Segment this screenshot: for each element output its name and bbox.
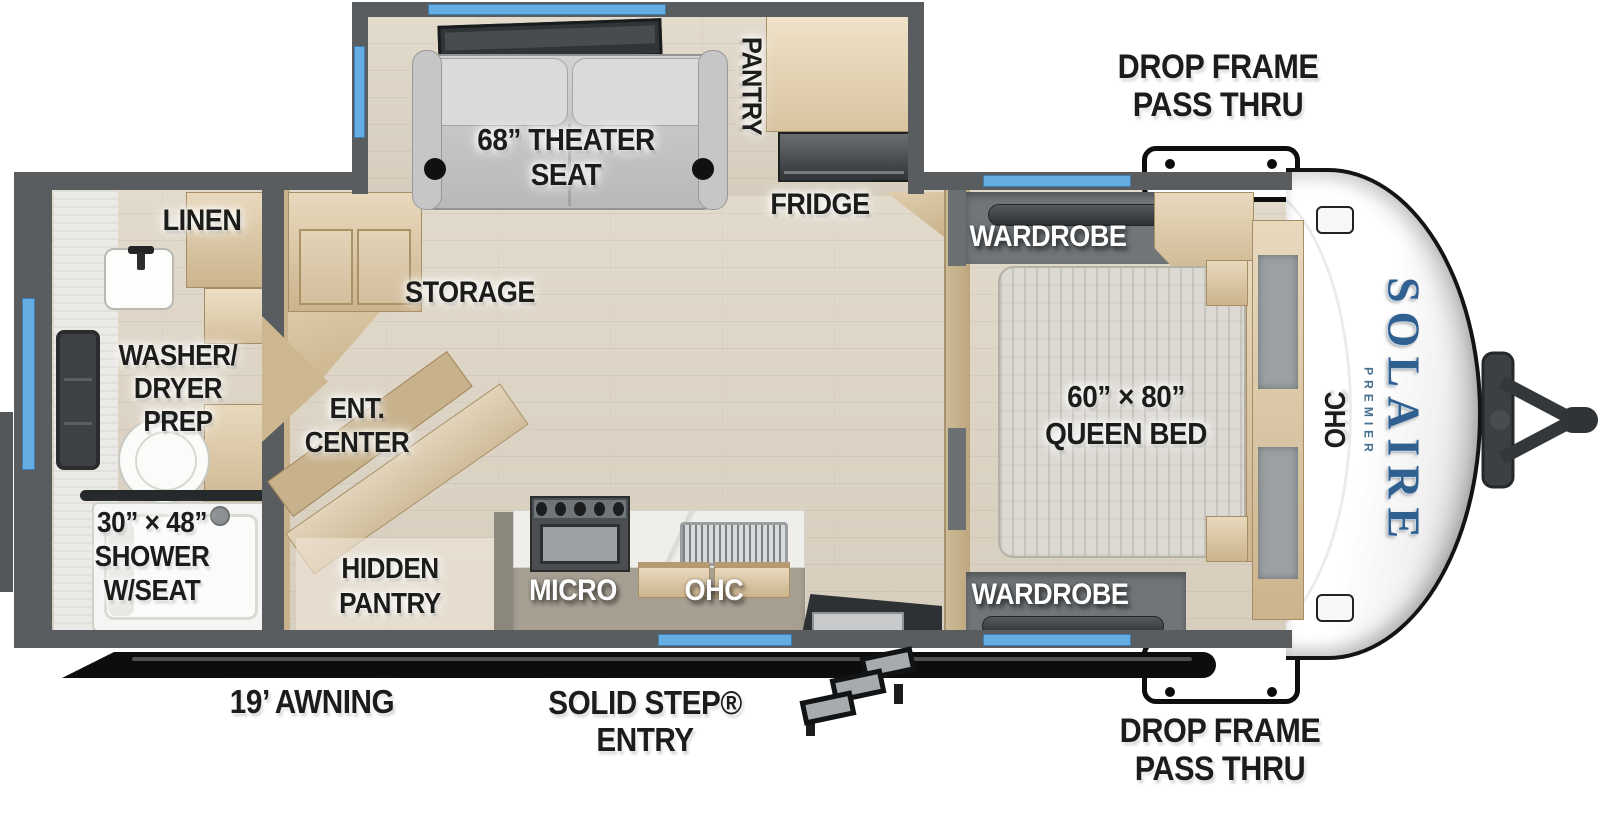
hidden-pantry-label: HIDDEN PANTRY bbox=[339, 552, 441, 622]
kitchen-end-panel bbox=[494, 512, 514, 632]
wardrobe-top-label: WARDROBE bbox=[970, 220, 1127, 254]
ent-center-line1: ENT. bbox=[305, 392, 410, 426]
divider-gray-segment bbox=[948, 190, 966, 266]
door-screw bbox=[1267, 159, 1277, 169]
door-screw bbox=[1267, 687, 1277, 697]
window-rear bbox=[22, 298, 35, 470]
drop-frame-bottom-line1: DROP FRAME bbox=[1120, 712, 1321, 750]
tongue-hitch bbox=[1440, 340, 1600, 500]
fridge-label: FRIDGE bbox=[770, 188, 869, 222]
shower-head-icon bbox=[210, 506, 230, 526]
bedside-cabinet bbox=[1206, 516, 1248, 562]
entry-line2: ENTRY bbox=[548, 721, 742, 758]
pantry-label: PANTRY bbox=[736, 37, 767, 135]
door-screw bbox=[1165, 687, 1175, 697]
cap-latch-top bbox=[1316, 206, 1354, 234]
hitch-jack bbox=[1490, 410, 1510, 430]
storage-label: STORAGE bbox=[405, 276, 535, 310]
drop-frame-top-line2: PASS THRU bbox=[1118, 86, 1319, 124]
micro-label: MICRO bbox=[529, 574, 617, 608]
oven-window bbox=[540, 524, 620, 564]
storage-cabinet bbox=[288, 192, 422, 312]
linen-label: LINEN bbox=[163, 204, 242, 238]
pantry-cabinet bbox=[766, 12, 924, 132]
brand-logo: SOLAIRE PREMIER bbox=[1362, 277, 1431, 547]
front-overhead-cabinet-band bbox=[1252, 220, 1304, 620]
washer-dryer-line3: PREP bbox=[119, 406, 238, 439]
cap-latch-bottom bbox=[1316, 594, 1354, 622]
entry-line1: SOLID STEP® bbox=[548, 684, 742, 721]
burner-icon bbox=[534, 500, 549, 518]
wardrobe-bottom-label: WARDROBE bbox=[972, 578, 1129, 612]
hitch-coupler bbox=[1560, 407, 1598, 433]
brand-name: SOLAIRE bbox=[1378, 277, 1431, 547]
queen-bed-line1: 60” × 80” bbox=[1045, 378, 1207, 415]
rear-bumper bbox=[0, 412, 13, 592]
floorplan-canvas: SOLAIRE PREMIER OHC PANTRY DROP FRAME PA… bbox=[0, 0, 1600, 815]
shower-line2: SHOWER bbox=[95, 540, 210, 574]
window-bedroom-top bbox=[983, 175, 1131, 187]
queen-bed-line2: QUEEN BED bbox=[1045, 415, 1207, 452]
window-slide-top bbox=[428, 4, 666, 15]
sofa-armrest bbox=[698, 50, 728, 210]
theater-seat-line1: 68” THEATER bbox=[477, 122, 654, 157]
cupholder-icon bbox=[692, 158, 714, 180]
theater-seat-line2: SEAT bbox=[477, 157, 654, 192]
solid-step-stairs bbox=[792, 646, 922, 738]
drop-frame-bottom-line2: PASS THRU bbox=[1120, 750, 1321, 788]
burner-row bbox=[534, 500, 626, 518]
shower-line3: W/SEAT bbox=[95, 574, 210, 608]
window-bedroom-bottom bbox=[983, 634, 1131, 646]
bedside-cabinet bbox=[1206, 260, 1248, 306]
fridge-door-line bbox=[784, 171, 904, 174]
entry-label: SOLID STEP® ENTRY bbox=[548, 684, 742, 758]
drop-frame-top-label: DROP FRAME PASS THRU bbox=[1118, 48, 1319, 124]
cabinet-inset bbox=[1258, 255, 1298, 389]
top-wall-left bbox=[14, 172, 364, 190]
faucet-stem bbox=[137, 252, 145, 270]
washer-dryer-label: WASHER/ DRYER PREP bbox=[119, 340, 238, 439]
cabinet-inset bbox=[1258, 447, 1298, 579]
theater-seat-label: 68” THEATER SEAT bbox=[477, 122, 654, 192]
toilet-bowl bbox=[135, 431, 197, 491]
burner-icon bbox=[592, 500, 607, 518]
step-leg bbox=[894, 684, 903, 704]
slide-wall-right bbox=[908, 2, 924, 194]
hidden-pantry-line2: PANTRY bbox=[339, 587, 441, 622]
ohc-kitchen-label: OHC bbox=[685, 574, 744, 608]
washer-dryer-line1: WASHER/ bbox=[119, 340, 238, 373]
brand-subtitle: PREMIER bbox=[1362, 277, 1376, 547]
bath-sink bbox=[104, 248, 174, 310]
window-kitchen bbox=[658, 634, 792, 646]
step-tread bbox=[802, 693, 853, 723]
washer-dryer-line2: DRYER bbox=[119, 373, 238, 406]
sofa-back-cushion bbox=[426, 58, 568, 126]
fridge bbox=[778, 132, 910, 182]
cabinet-door bbox=[357, 229, 411, 305]
ent-center-label: ENT. CENTER bbox=[305, 392, 410, 460]
burner-icon bbox=[572, 500, 587, 518]
divider-gray-segment bbox=[948, 428, 966, 530]
burner-icon bbox=[611, 500, 626, 518]
drop-frame-bottom-label: DROP FRAME PASS THRU bbox=[1120, 712, 1321, 788]
stove bbox=[530, 496, 630, 572]
cabinet-shelf-line bbox=[64, 422, 92, 425]
hidden-pantry-line1: HIDDEN bbox=[339, 552, 441, 587]
awning-bar bbox=[62, 652, 1216, 678]
sofa-armrest bbox=[412, 50, 442, 210]
cupholder-icon bbox=[424, 158, 446, 180]
shower-label: 30” × 48” SHOWER W/SEAT bbox=[95, 506, 210, 608]
window-slide-left bbox=[354, 46, 365, 138]
door-screw bbox=[1165, 159, 1175, 169]
shower-rod bbox=[80, 490, 272, 501]
awning-label: 19’ AWNING bbox=[230, 684, 394, 721]
queen-bed-label: 60” × 80” QUEEN BED bbox=[1045, 378, 1207, 452]
cabinet-door bbox=[299, 229, 353, 305]
cabinet-shelf-line bbox=[64, 378, 92, 381]
awning-highlight bbox=[132, 657, 1192, 661]
burner-icon bbox=[553, 500, 568, 518]
sofa-back-cushion bbox=[572, 58, 714, 126]
medicine-cabinet bbox=[56, 330, 100, 470]
tv-screen bbox=[445, 25, 656, 50]
kitchen-sink-rack bbox=[680, 522, 788, 566]
ent-center-line2: CENTER bbox=[305, 426, 410, 460]
drop-frame-top-line1: DROP FRAME bbox=[1118, 48, 1319, 86]
ohc-front-label: OHC bbox=[1320, 392, 1352, 449]
shower-line1: 30” × 48” bbox=[95, 506, 210, 540]
